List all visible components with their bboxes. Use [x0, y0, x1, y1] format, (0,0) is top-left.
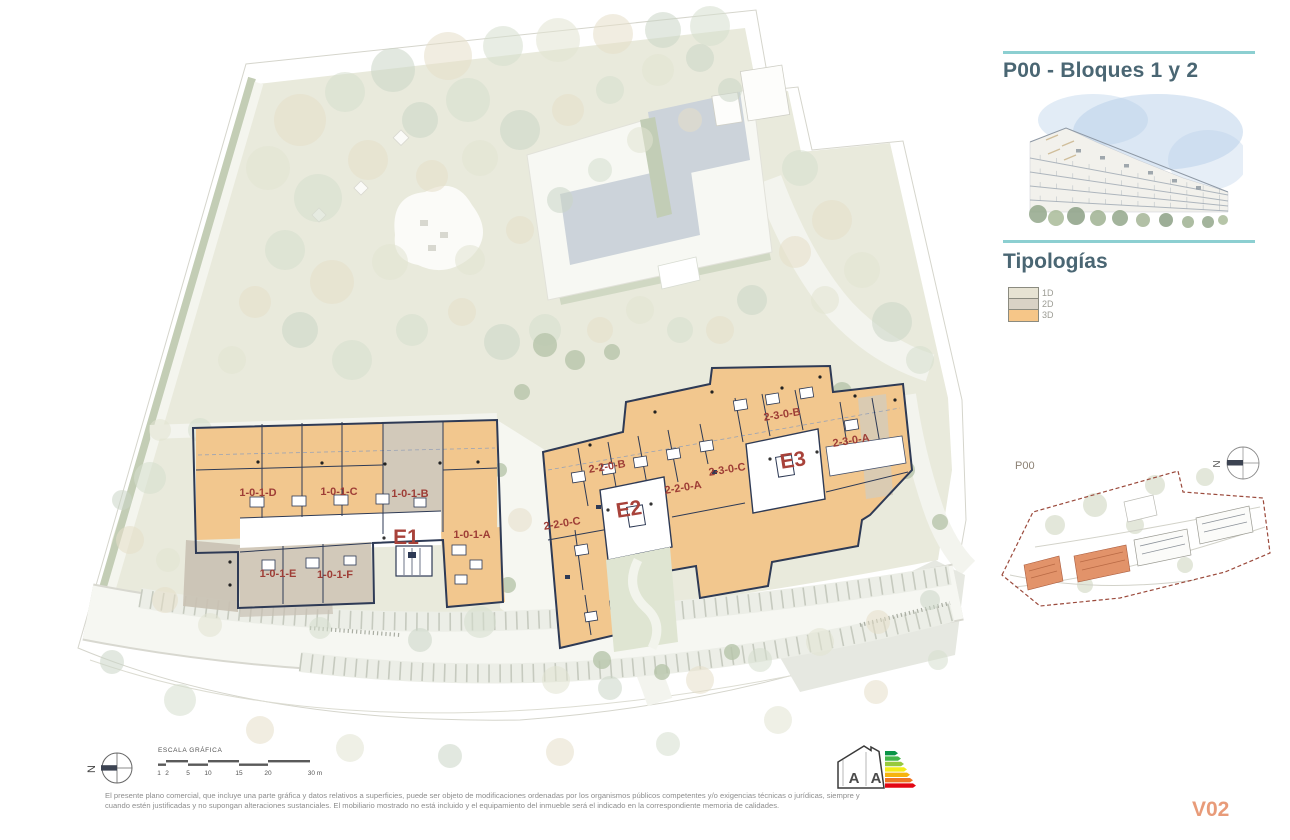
plan-page: 1-0-1-D 1-0-1-C 1-0-1-B 1-0-1-A 1-0-1-E …: [0, 0, 1290, 840]
scale-tick: 10: [204, 770, 212, 777]
legend-label-3d: 3D: [1042, 309, 1054, 321]
scale-tick: 15: [235, 770, 243, 777]
minimap-block-4: [1196, 506, 1253, 544]
north-compass: N: [86, 753, 132, 783]
scale-tick: 1: [157, 770, 161, 777]
unit-label-1-0-1-d: 1-0-1-D: [239, 487, 276, 499]
version-label: V02: [1192, 798, 1229, 822]
minimap-label-p00: P00: [1015, 460, 1035, 472]
unit-label-1-0-1-e: 1-0-1-E: [260, 568, 297, 580]
legend-row-3d: 3D: [1008, 309, 1054, 321]
page-title: P00 - Bloques 1 y 2: [1003, 59, 1198, 83]
unit-label-1-0-1-f: 1-0-1-F: [317, 569, 353, 581]
minimap-north-letter: N: [1212, 460, 1223, 467]
minimap-north-arrow-bar: [1227, 460, 1243, 466]
scale-bar: ESCALA GRÁFICA 1 2 5 10 15 20 30 m: [157, 745, 322, 777]
scale-tick: 30 m: [308, 770, 322, 777]
building-rendering: [1018, 90, 1243, 240]
energy-letter-a2: A: [871, 770, 882, 787]
energy-letter-a1: A: [849, 770, 860, 787]
north-letter: N: [86, 765, 98, 773]
disclaimer-line-2: cuando estén justificadas y no supongan …: [105, 801, 860, 811]
minimap-block-1: [1024, 556, 1063, 590]
building-block-1: 1-0-1-D 1-0-1-C 1-0-1-B 1-0-1-A 1-0-1-E …: [183, 420, 505, 617]
location-minimap: P00 N: [995, 425, 1290, 625]
disclaimer: El presente plano comercial, que incluye…: [105, 791, 860, 811]
legend-swatch-3d: [1008, 309, 1039, 322]
north-arrow-bar: [101, 765, 117, 770]
block-label-e1: E1: [393, 526, 419, 549]
typologies-heading: Tipologías: [1003, 250, 1108, 274]
site-plan: 1-0-1-D 1-0-1-C 1-0-1-B 1-0-1-A 1-0-1-E …: [0, 0, 992, 840]
unit-label-1-0-1-b: 1-0-1-B: [391, 488, 428, 500]
energy-rating-logo: A A: [838, 746, 916, 788]
block-label-e3: E3: [778, 447, 807, 474]
stair-core: [396, 546, 432, 576]
minimap-block-2: [1074, 545, 1130, 582]
scale-tick: 20: [264, 770, 272, 777]
minimap-north-compass: N: [1212, 447, 1259, 479]
teal-rule-bottom: [1003, 240, 1255, 243]
energy-arrows-icon: [885, 751, 916, 788]
block-label-e2: E2: [614, 496, 643, 523]
minimap-courts: [1124, 495, 1157, 522]
unit-label-1-0-1-a: 1-0-1-A: [453, 529, 490, 541]
scale-tick: 2: [165, 770, 169, 777]
disclaimer-line-1: El presente plano comercial, que incluye…: [105, 791, 860, 801]
teal-rule-top: [1003, 51, 1255, 54]
scale-tick: 5: [186, 770, 190, 777]
typologies-legend: 1D 2D 3D: [1008, 288, 1054, 321]
scale-bar-title: ESCALA GRÁFICA: [158, 745, 222, 754]
unit-label-1-0-1-c: 1-0-1-C: [320, 486, 357, 498]
